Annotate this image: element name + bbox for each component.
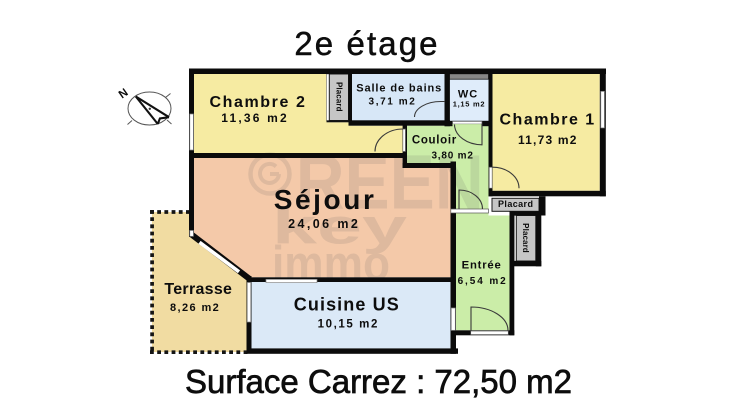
svg-text:Placard: Placard — [521, 223, 530, 253]
svg-text:Salle de bains: Salle de bains — [356, 83, 442, 95]
svg-text:Placard: Placard — [335, 82, 344, 112]
svg-text:6,54 m2: 6,54 m2 — [458, 276, 508, 287]
svg-text:3,71 m2: 3,71 m2 — [369, 96, 417, 107]
svg-text:Chambre 1: Chambre 1 — [499, 112, 595, 129]
svg-text:Terrasse: Terrasse — [164, 281, 232, 298]
svg-text:Placard: Placard — [498, 199, 533, 209]
svg-text:Cuisine US: Cuisine US — [294, 295, 400, 315]
svg-text:11,73 m2: 11,73 m2 — [518, 133, 578, 147]
svg-text:8,26 m2: 8,26 m2 — [170, 302, 220, 314]
svg-text:Entrée: Entrée — [462, 260, 502, 272]
svg-text:Couloir: Couloir — [412, 135, 457, 147]
svg-text:3,80 m2: 3,80 m2 — [431, 151, 473, 162]
svg-text:Séjour: Séjour — [274, 184, 377, 215]
svg-text:2e étage: 2e étage — [294, 25, 439, 62]
svg-text:24,06 m2: 24,06 m2 — [288, 217, 360, 231]
svg-text:11,36 m2: 11,36 m2 — [221, 111, 289, 125]
svg-text:1,15 m2: 1,15 m2 — [453, 100, 485, 109]
svg-text:10,15 m2: 10,15 m2 — [318, 318, 379, 330]
svg-text:Chambre 2: Chambre 2 — [209, 94, 306, 111]
svg-text:WC: WC — [458, 88, 478, 100]
svg-text:Surface Carrez : 72,50 m2: Surface Carrez : 72,50 m2 — [185, 363, 572, 400]
